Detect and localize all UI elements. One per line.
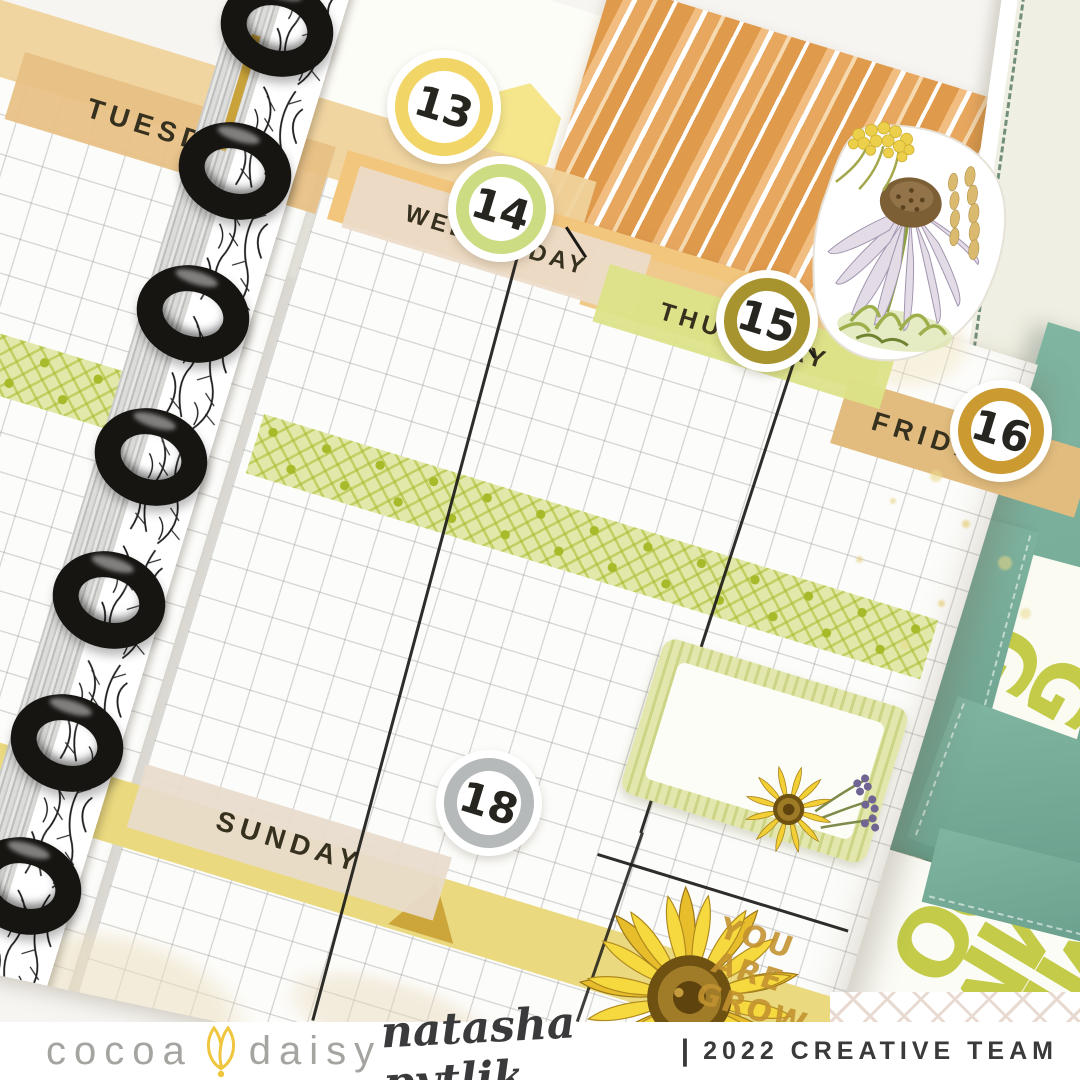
daisy-bud-icon: [203, 1024, 239, 1078]
splatter-dot: [890, 498, 896, 504]
brand-word-right: daisy: [249, 1029, 382, 1074]
badge-number: 13: [409, 75, 479, 139]
day-badge-13: 13: [387, 50, 501, 164]
brand-word-left: cocoa: [46, 1029, 193, 1074]
splatter-dot: [930, 470, 942, 482]
splatter-dot: [856, 556, 863, 563]
day-badge-16: 16: [950, 380, 1052, 482]
splatter-dot: [962, 520, 970, 528]
brand-logo: cocoa daisy: [46, 1024, 382, 1078]
splatter-dot: [900, 640, 910, 650]
splatter-dot: [1020, 608, 1031, 619]
badge-number: 14: [466, 177, 536, 241]
credit-name: natasha pytlik: [380, 993, 670, 1080]
planner-photo: G G MMM MMM OO TUESDAY 13 WEDNESDAY: [0, 0, 1080, 1080]
badge-number: 16: [966, 399, 1036, 463]
credit-team: 2022 CREATIVE TEAM: [703, 1037, 1058, 1066]
splatter-dot: [998, 556, 1012, 570]
credit-line: natasha pytlik | 2022 CREATIVE TEAM: [382, 1000, 1058, 1080]
day-badge-18: 18: [436, 750, 542, 856]
splatter-dot: [938, 600, 945, 607]
badge-number: 18: [454, 771, 524, 835]
coneflower-sticker: [775, 102, 1033, 386]
day-badge-14: 14: [448, 156, 554, 262]
footer-bar: cocoa daisy natasha pytlik | 2022 CREATI…: [0, 1022, 1080, 1080]
credit-divider: |: [681, 1034, 689, 1068]
